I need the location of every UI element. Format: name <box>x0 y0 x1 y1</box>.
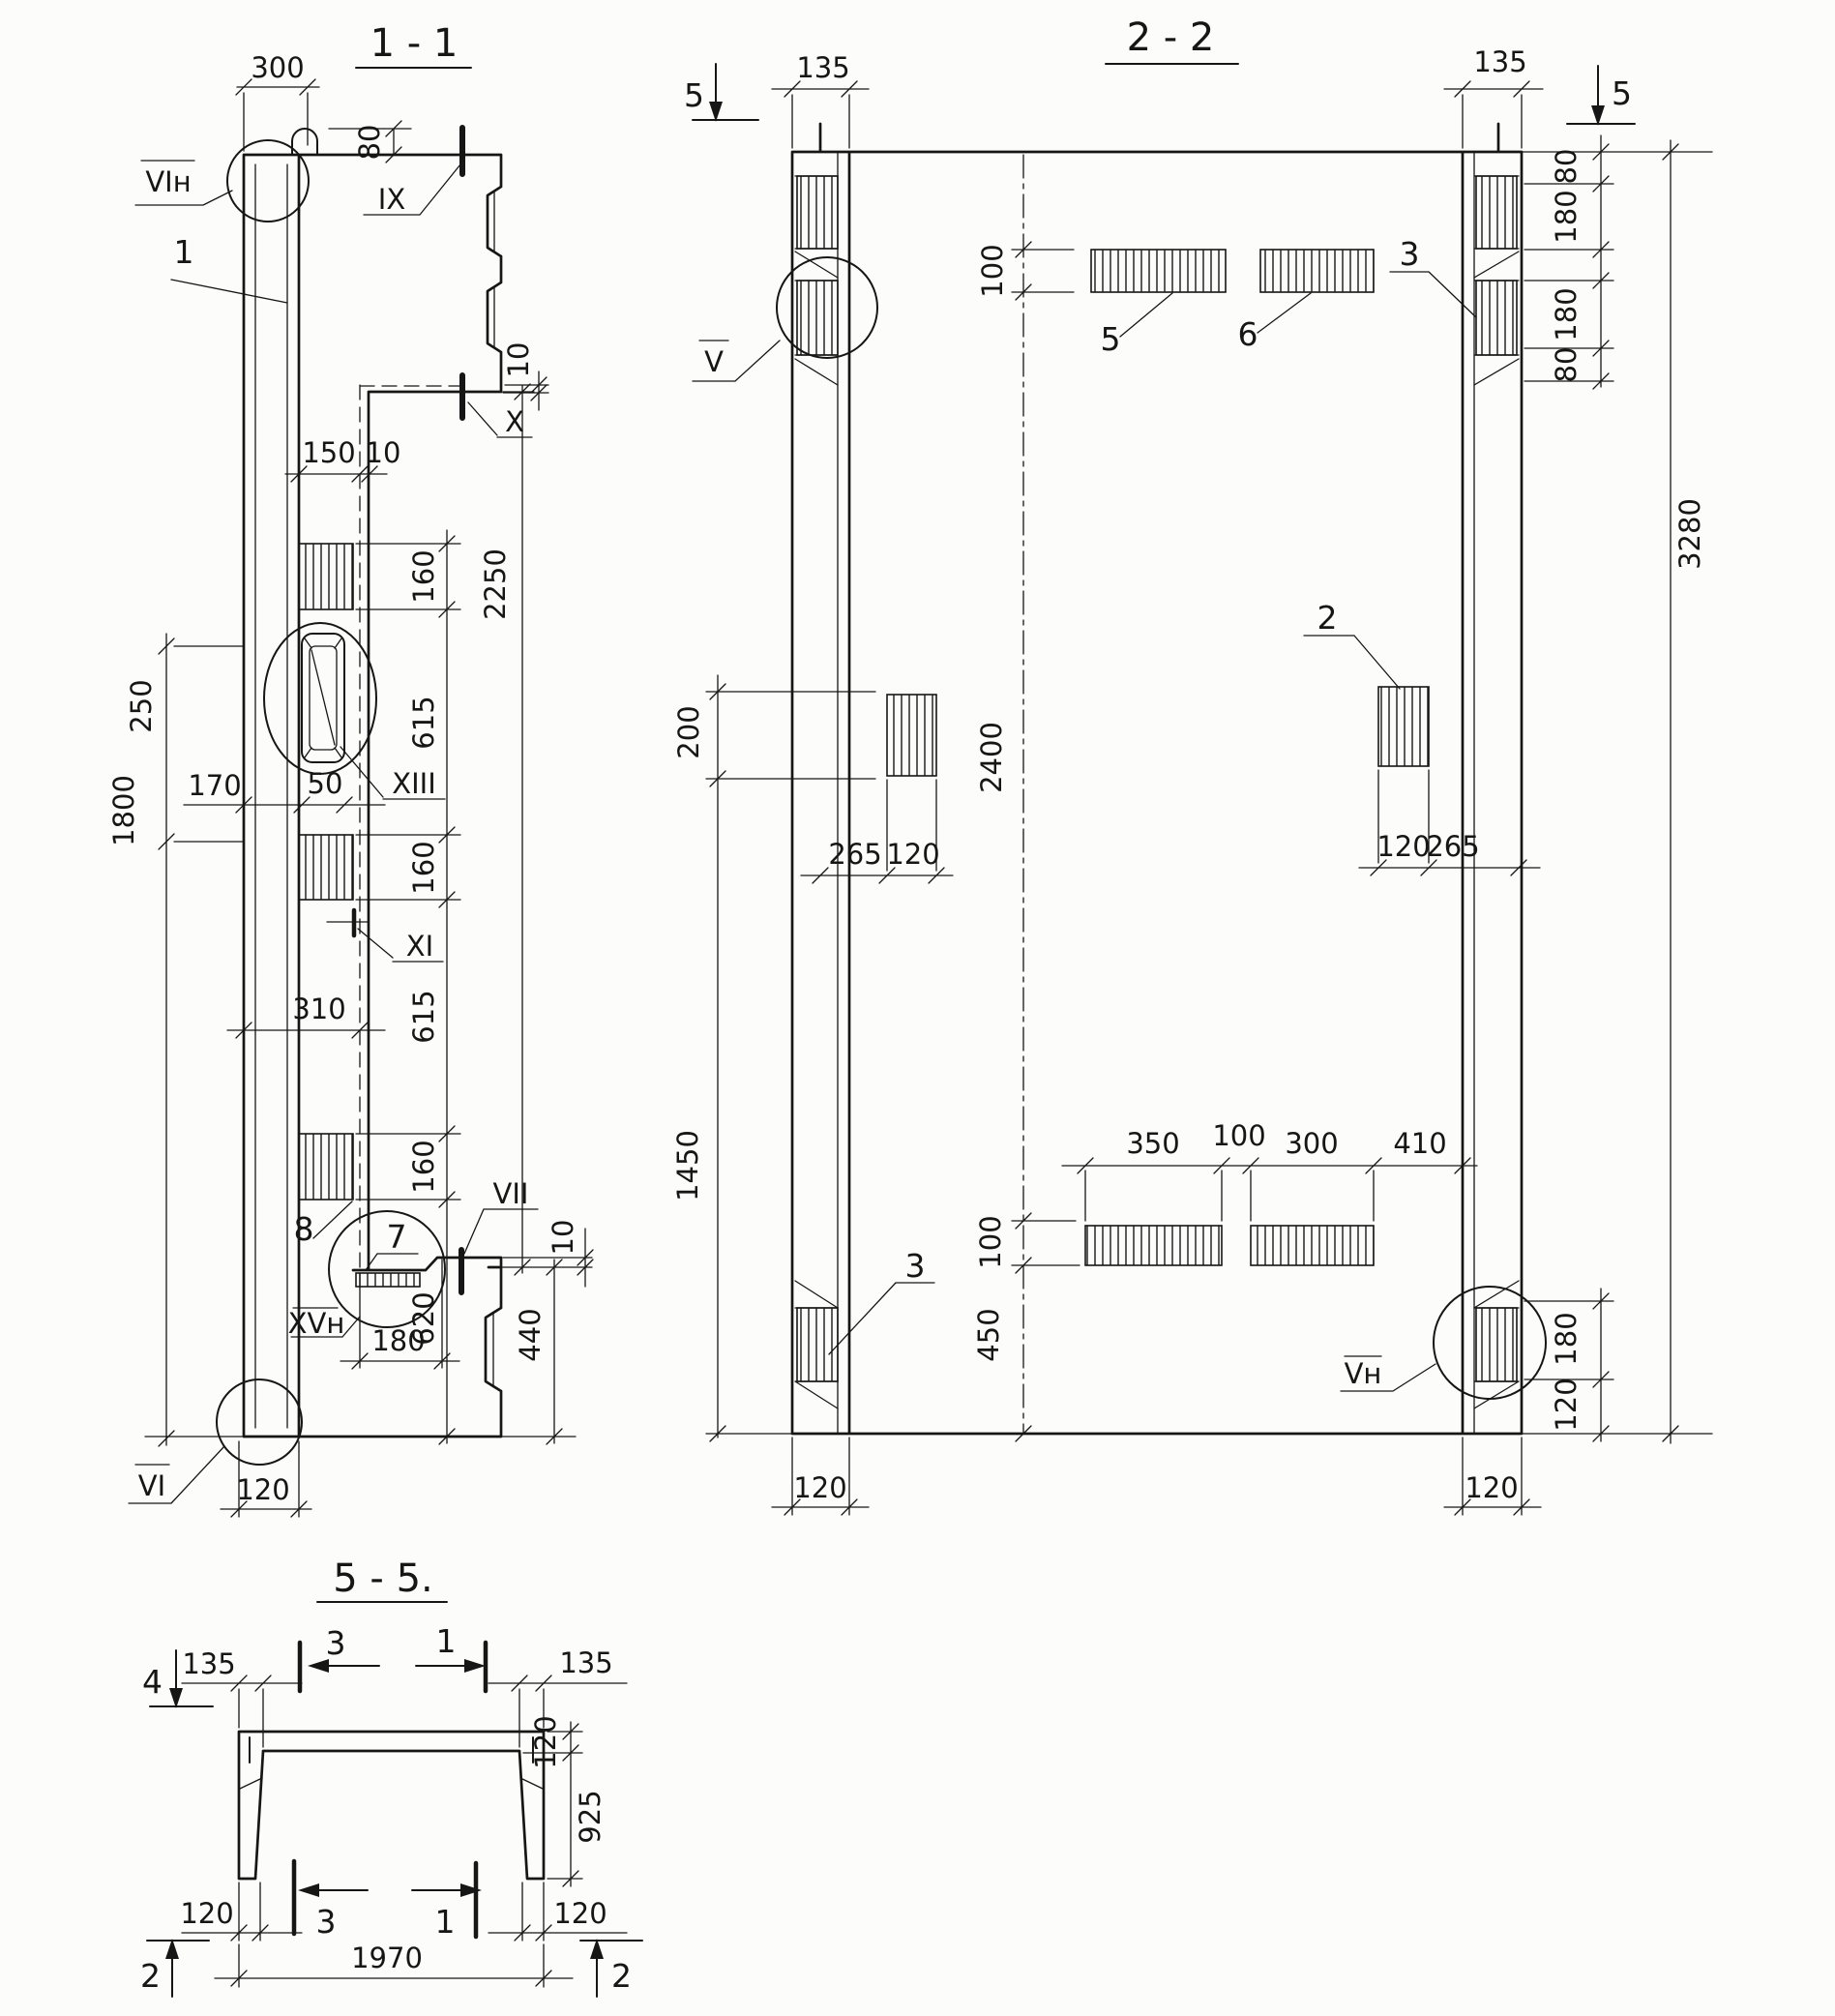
anchor-bottom-right <box>1251 1226 1374 1265</box>
anchor-square-right <box>1378 687 1429 766</box>
dim-80a-label: 80 <box>1550 149 1583 185</box>
dim-10-top-label: 10 <box>502 342 535 378</box>
panel-outline-1-1 <box>244 129 501 1437</box>
callout-8-label: 8 <box>294 1210 314 1248</box>
dim-300-label: 300 <box>251 51 304 84</box>
detail-label-xiii: XIII <box>392 767 436 800</box>
wall-hatch-left-1 <box>797 176 838 249</box>
dim-135-left-label-55: 135 <box>182 1647 235 1680</box>
detail-label-vi: VI <box>138 1469 165 1502</box>
anchor-item-5 <box>1091 250 1226 292</box>
dim-120-br-label: 120 <box>1465 1471 1518 1504</box>
dim-10-br-label: 10 <box>547 1220 579 1256</box>
mark-ix-label: IX <box>378 183 405 216</box>
section-1-1: 1 - 1 300 80 VIн 1 IX 10 X 150 10 160 25… <box>107 21 593 1517</box>
dim-120-right-label: 120 <box>1376 830 1430 863</box>
dim-50-label: 50 <box>308 767 343 800</box>
mark-5-right-label: 5 <box>1612 74 1632 112</box>
dim-135-right-label: 135 <box>1473 45 1526 78</box>
dim-120-label: 120 <box>236 1473 289 1506</box>
anchor-square-left <box>887 695 936 776</box>
dim-100-mid-label: 100 <box>1212 1119 1265 1152</box>
dim-265-left-label: 265 <box>828 838 881 871</box>
anchor-hatch-3 <box>299 1134 353 1200</box>
wall-hatch-right-2 <box>1476 281 1517 355</box>
detail-circle-vi <box>217 1379 302 1465</box>
dim-170-label: 170 <box>188 769 241 802</box>
mark-xi-label: XI <box>406 930 433 963</box>
dim-450-label: 450 <box>972 1308 1005 1361</box>
callout-5-label: 5 <box>1101 320 1121 358</box>
dim-100-top-label: 100 <box>976 244 1009 297</box>
section-title-2-2: 2 - 2 <box>1127 15 1215 60</box>
section-5-5: 5 - 5. 4 135 3 1 135 120 925 120 3 1 120… <box>140 1556 642 1997</box>
dim-265-right-label: 265 <box>1426 830 1479 863</box>
dim-1970-label: 1970 <box>351 1942 423 1974</box>
detail-circle-vi-n <box>227 140 309 222</box>
dim-615a-label: 615 <box>407 696 440 749</box>
drawing-canvas: 1 - 1 300 80 VIн 1 IX 10 X 150 10 160 25… <box>0 0 1835 2016</box>
dim-120-right-chain-label: 120 <box>1550 1378 1583 1431</box>
dim-2250-label: 2250 <box>479 548 512 620</box>
wall-hatch-right-1 <box>1476 176 1517 249</box>
anchor-item-6 <box>1260 250 1374 292</box>
section-cut-bars <box>461 128 462 1292</box>
dim-250-label: 250 <box>125 679 158 732</box>
mark-x-label: X <box>505 405 524 438</box>
leader-lines-2-2 <box>693 272 1476 1391</box>
callout-2-label: 2 <box>1317 599 1338 637</box>
dim-310-label: 310 <box>292 993 345 1025</box>
dim-1800-label: 1800 <box>107 775 140 846</box>
anchor-hatch-2 <box>299 835 353 900</box>
dim-200-label: 200 <box>672 705 705 758</box>
dimension-ticks-5-5 <box>231 1675 578 1986</box>
callout-7-label: 7 <box>387 1218 407 1256</box>
dim-100-bot-label: 100 <box>974 1215 1007 1268</box>
dim-615b-label: 615 <box>407 990 440 1043</box>
mark-2-left-label: 2 <box>140 1957 161 1995</box>
mark-1-bottom-label: 1 <box>435 1903 456 1941</box>
dim-180a-label: 180 <box>1550 190 1583 243</box>
section-title-5-5: 5 - 5. <box>333 1556 432 1601</box>
dim-135-right-label-55: 135 <box>559 1646 612 1679</box>
wall-hatch-left-2 <box>797 281 838 355</box>
wall-hatch-left-3 <box>797 1308 838 1381</box>
dimension-ticks-2-2 <box>710 81 1678 1515</box>
dim-120-left-label-55: 120 <box>180 1897 233 1930</box>
dim-180b-label: 180 <box>1550 287 1583 341</box>
dim-120-web-label: 120 <box>529 1715 562 1768</box>
dim-80b-label: 80 <box>1550 347 1583 383</box>
dim-300-label-22: 300 <box>1285 1127 1338 1160</box>
detail-label-v: V <box>704 345 724 378</box>
anchor-hatch-1 <box>299 544 353 609</box>
mark-1-top-label: 1 <box>436 1622 457 1660</box>
mark-vii-label: VII <box>493 1177 529 1210</box>
dim-925-label: 925 <box>574 1790 607 1843</box>
mark-2-right-label: 2 <box>611 1957 632 1995</box>
dim-160a-label: 160 <box>407 549 440 603</box>
detail-label-vi-n: VIн <box>145 165 191 198</box>
drawing-sheet: 1 - 1 300 80 VIн 1 IX 10 X 150 10 160 25… <box>0 0 1835 2016</box>
section-2-2: 2 - 2 5 135 135 5 80 180 180 80 3280 100… <box>671 15 1712 1515</box>
anchor-bottom-left <box>1085 1226 1222 1265</box>
dim-10-ledge-label: 10 <box>366 436 401 469</box>
channel-outline-5-5 <box>239 1732 544 1879</box>
dim-80-label: 80 <box>353 125 386 161</box>
callout-3-top-label: 3 <box>1400 235 1420 273</box>
dim-135-left-label: 135 <box>796 51 849 84</box>
mark-5-left-label: 5 <box>684 76 704 114</box>
dim-440-label: 440 <box>514 1308 547 1361</box>
dim-620-label: 620 <box>407 1291 440 1345</box>
callout-3-bottom-label: 3 <box>905 1247 926 1285</box>
dim-160b-label: 160 <box>407 841 440 894</box>
mark-4-label: 4 <box>142 1663 163 1701</box>
dim-120-bl-label: 120 <box>793 1471 846 1504</box>
leader-lines-1-1 <box>129 161 538 1503</box>
dim-180-right-label: 180 <box>1550 1312 1583 1365</box>
dim-1450-label: 1450 <box>671 1130 704 1201</box>
anchor-zones-2-2 <box>797 176 1517 1381</box>
dim-2400-label: 2400 <box>975 722 1008 793</box>
keyway-slot <box>302 634 344 762</box>
dim-120-right-label-55: 120 <box>553 1897 607 1930</box>
dim-150-label: 150 <box>302 436 355 469</box>
detail-label-xv-n: XVн <box>288 1307 345 1340</box>
dim-160c-label: 160 <box>407 1140 440 1193</box>
dim-3280-label: 3280 <box>1673 498 1706 570</box>
section-title-1-1: 1 - 1 <box>370 21 459 66</box>
detail-label-v-n: Vн <box>1345 1357 1382 1390</box>
callout-1-label: 1 <box>174 233 194 271</box>
wall-hatch-right-3 <box>1476 1308 1517 1381</box>
dim-410-label: 410 <box>1393 1127 1446 1160</box>
dim-120-left-label: 120 <box>886 838 939 871</box>
mark-3-top-label: 3 <box>326 1624 346 1662</box>
anchor-strip-7 <box>356 1273 420 1287</box>
callout-6-label: 6 <box>1238 315 1258 353</box>
dim-350-label: 350 <box>1126 1127 1179 1160</box>
mark-3-bottom-label: 3 <box>316 1903 337 1941</box>
